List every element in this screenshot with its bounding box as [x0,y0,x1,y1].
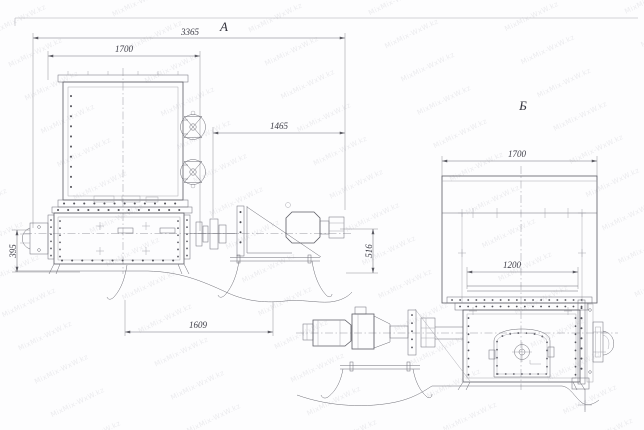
svg-text:1700: 1700 [115,44,134,54]
dim-overall-length: 3365 [33,27,345,228]
trough-front [48,207,192,274]
ground-line-a [15,271,352,302]
drawing-sheet: MixMix-WxW.kz MixMix-WxW.kz MixMix-WxW.k… [0,0,644,430]
dim-drive-length: 1465 [213,121,345,218]
view-b-label: Б [518,98,527,113]
dim-bearing-height: 395 [8,230,80,272]
handwheel-icon [181,111,206,140]
technical-drawing: А 3365 1700 1465 [0,0,644,430]
svg-text:1465: 1465 [270,121,289,131]
dim-outlet-width: 1200 [467,260,578,289]
dim-drive-height: 516 [340,229,378,273]
drive-assembly-side [303,307,470,381]
view-b: Б 1700 1200 [296,98,618,412]
bearing-assembly-right [572,300,614,412]
view-a: А 3365 1700 1465 [8,19,378,336]
hopper-side [442,176,597,303]
svg-text:1200: 1200 [503,260,522,270]
view-a-label: А [219,19,228,34]
bearing-left [20,223,48,254]
handwheel-icon [181,160,206,189]
dim-hopper-width-b: 1700 [442,149,597,180]
svg-text:1700: 1700 [508,149,527,159]
ground-line-b [297,386,599,406]
svg-text:516: 516 [364,244,374,258]
svg-text:3365: 3365 [180,27,200,37]
sheet-border [15,18,638,26]
support-frame-a [107,255,332,299]
svg-text:1609: 1609 [189,320,208,330]
dim-frame-span: 1609 [125,300,273,336]
hatch-door [489,329,554,377]
svg-text:395: 395 [8,244,18,259]
support-frame-b [321,362,432,398]
